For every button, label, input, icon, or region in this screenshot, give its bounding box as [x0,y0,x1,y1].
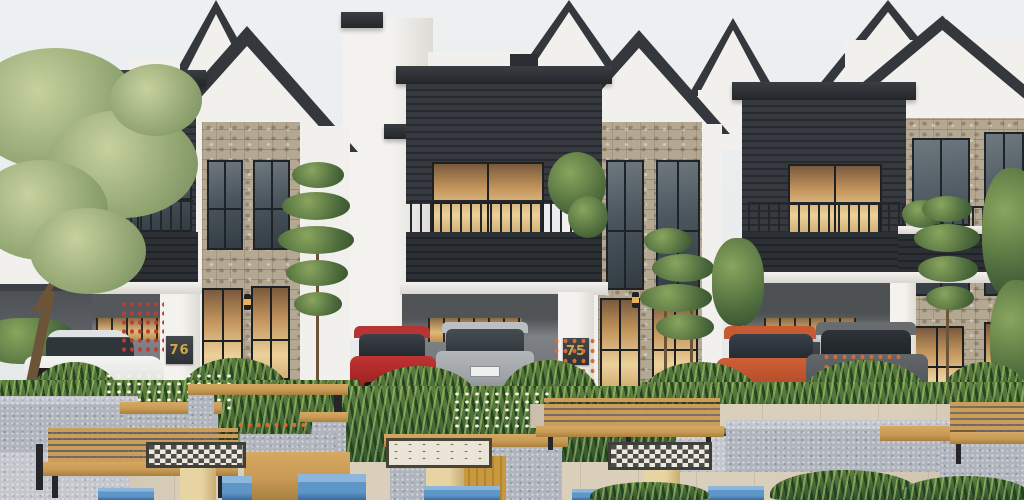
house76-wall-lantern [244,294,251,310]
bench-leg [548,437,553,450]
background-tower-roof [341,12,383,28]
bench-seat [950,432,1024,444]
house76-upper-window-left [207,160,243,250]
bench-backrest [544,398,720,426]
house74-flat-roof [732,82,916,100]
bench-leg [52,476,58,498]
tree74-foliage-2 [914,224,980,252]
stool [424,486,500,500]
tree74-foliage [922,196,972,222]
tree76-foliage [292,162,344,188]
stool [98,488,154,500]
house75-wall-lantern [632,292,639,308]
bench-seat [536,426,724,437]
house75-balcony-parapet [406,232,602,284]
villa-render-scene: 76 75 74 [0,0,1024,500]
house74-balcony-parapet [742,232,906,274]
flowerbed-76 [120,300,164,354]
left-tree-foliage-4 [30,208,146,294]
pergola-beam [188,384,348,395]
stool [708,486,764,500]
tree75-foliage-4 [656,314,714,340]
left-planter-wall-cap [0,396,138,404]
lectern-board [386,438,492,468]
pergola-ledge [300,412,348,422]
right-edge-foliage [982,168,1024,298]
house76-number-plaque: 76 [166,336,193,364]
tree76-foliage-5 [294,292,342,316]
tree74-foliage-3 [918,256,978,282]
chessboard [608,442,712,470]
house75-lower-window-left [600,298,640,388]
chessboard [146,442,246,468]
bench-armrest [36,444,43,490]
stool [298,474,366,500]
tree74-foliage-4 [926,286,974,310]
house76-number: 76 [169,343,189,358]
tree75-foliage-2 [652,254,714,282]
house75-balcony-tree-2 [568,196,608,238]
tree76-foliage-4 [286,260,348,286]
chess-table-pedestal [180,468,216,500]
tree75-foliage [644,228,692,254]
tree76-foliage-3 [278,226,354,254]
tree-mid-foliage [712,238,764,326]
bench-leg [956,444,961,464]
bench-far-right [950,402,1024,466]
house74-balcony-railing [748,202,900,234]
tree76-foliage-2 [282,192,350,220]
house75-flat-roof [396,66,612,84]
car-plate [470,366,500,377]
left-tree-foliage-5 [110,64,202,136]
bench-backrest [950,402,1024,432]
tree75-foliage-3 [640,284,712,312]
house75-upper-window-left [606,160,644,290]
stool [222,476,252,500]
